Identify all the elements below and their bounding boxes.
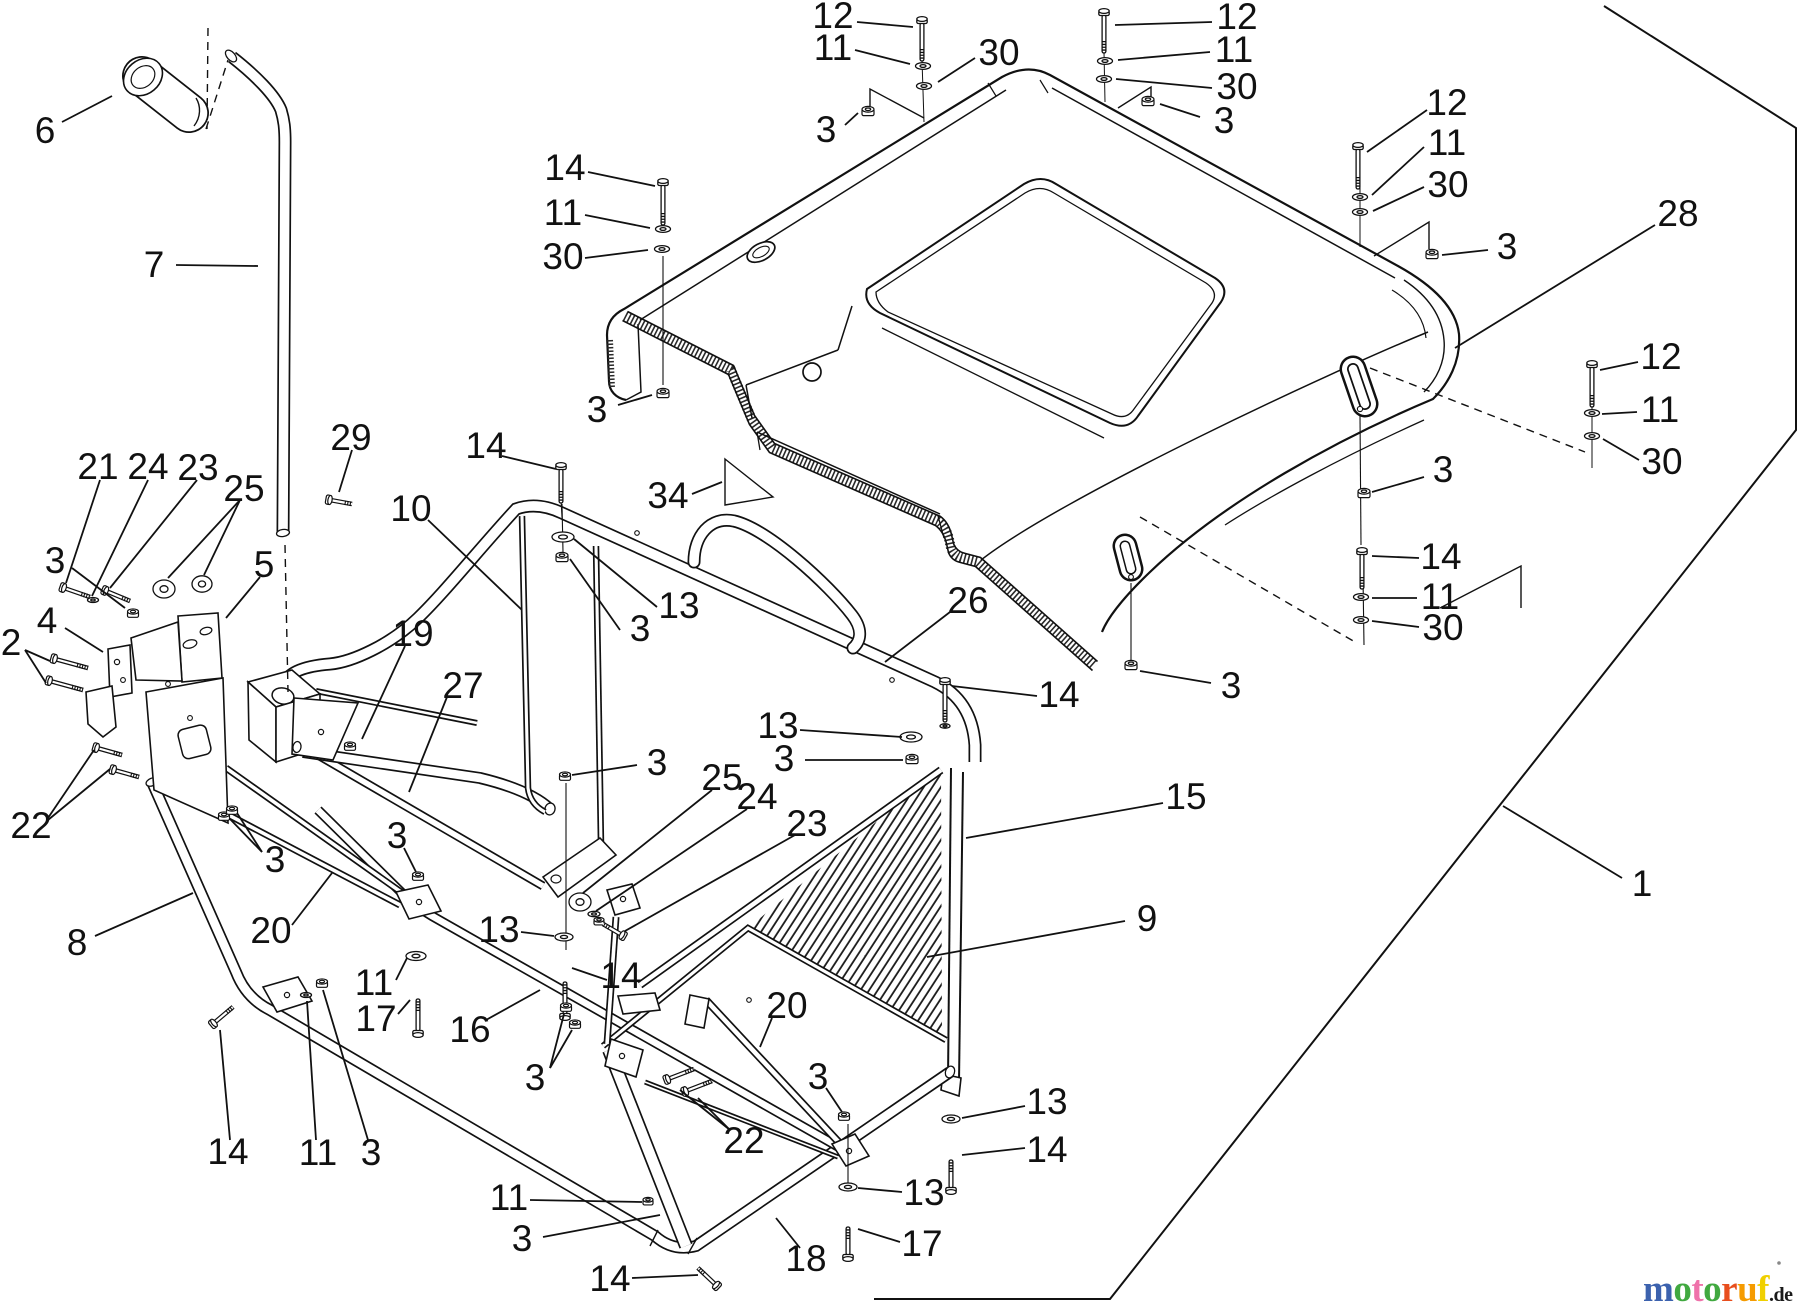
svg-text:14: 14 xyxy=(1038,674,1079,715)
svg-text:13: 13 xyxy=(903,1172,944,1213)
svg-text:14: 14 xyxy=(1026,1129,1067,1170)
svg-text:16: 16 xyxy=(449,1009,490,1050)
svg-text:3: 3 xyxy=(45,540,66,581)
svg-text:10: 10 xyxy=(390,488,431,529)
svg-text:3: 3 xyxy=(1221,665,1242,706)
svg-text:34: 34 xyxy=(647,475,688,516)
svg-text:5: 5 xyxy=(254,544,275,585)
svg-text:14: 14 xyxy=(207,1131,248,1172)
svg-text:13: 13 xyxy=(478,909,519,950)
svg-text:20: 20 xyxy=(250,910,291,951)
svg-text:3: 3 xyxy=(525,1057,546,1098)
svg-text:3: 3 xyxy=(587,389,608,430)
svg-text:8: 8 xyxy=(67,922,88,963)
svg-text:19: 19 xyxy=(392,613,433,654)
svg-text:23: 23 xyxy=(786,803,827,844)
svg-text:25: 25 xyxy=(223,468,264,509)
svg-text:7: 7 xyxy=(144,244,165,285)
svg-text:13: 13 xyxy=(1026,1081,1067,1122)
svg-text:20: 20 xyxy=(766,985,807,1026)
svg-text:3: 3 xyxy=(816,109,837,150)
svg-text:2: 2 xyxy=(1,622,22,663)
svg-text:11: 11 xyxy=(1215,29,1253,70)
svg-text:3: 3 xyxy=(1433,449,1454,490)
svg-text:3: 3 xyxy=(387,815,408,856)
svg-text:11: 11 xyxy=(1641,389,1679,430)
svg-text:21: 21 xyxy=(77,446,118,487)
svg-text:29: 29 xyxy=(330,417,371,458)
svg-text:12: 12 xyxy=(1426,82,1467,123)
svg-text:14: 14 xyxy=(1420,536,1461,577)
svg-text:22: 22 xyxy=(10,805,51,846)
svg-text:3: 3 xyxy=(361,1132,382,1173)
svg-text:11: 11 xyxy=(490,1177,528,1218)
svg-text:27: 27 xyxy=(442,665,483,706)
svg-text:11: 11 xyxy=(544,192,582,233)
svg-text:24: 24 xyxy=(736,776,777,817)
svg-text:30: 30 xyxy=(1422,607,1463,648)
svg-text:12: 12 xyxy=(1640,336,1681,377)
svg-text:30: 30 xyxy=(542,236,583,277)
svg-text:3: 3 xyxy=(630,608,651,649)
svg-text:3: 3 xyxy=(1214,100,1235,141)
svg-text:22: 22 xyxy=(723,1120,764,1161)
svg-text:30: 30 xyxy=(978,32,1019,73)
svg-text:3: 3 xyxy=(647,742,668,783)
svg-text:6: 6 xyxy=(35,110,56,151)
svg-text:11: 11 xyxy=(1428,122,1466,163)
svg-text:3: 3 xyxy=(774,738,795,779)
svg-text:14: 14 xyxy=(465,425,506,466)
svg-text:14: 14 xyxy=(600,955,641,996)
svg-text:3: 3 xyxy=(512,1218,533,1259)
svg-text:1: 1 xyxy=(1632,863,1653,904)
svg-text:17: 17 xyxy=(355,998,396,1039)
svg-text:28: 28 xyxy=(1657,193,1698,234)
svg-text:26: 26 xyxy=(947,580,988,621)
svg-text:14: 14 xyxy=(544,147,585,188)
svg-text:17: 17 xyxy=(901,1223,942,1264)
svg-text:11: 11 xyxy=(814,27,852,68)
svg-text:11: 11 xyxy=(299,1132,337,1173)
svg-text:24: 24 xyxy=(127,446,168,487)
svg-text:3: 3 xyxy=(1497,226,1518,267)
svg-text:9: 9 xyxy=(1137,898,1158,939)
svg-text:18: 18 xyxy=(785,1238,826,1279)
svg-text:30: 30 xyxy=(1427,164,1468,205)
svg-text:3: 3 xyxy=(808,1056,829,1097)
svg-text:14: 14 xyxy=(589,1258,630,1299)
svg-text:13: 13 xyxy=(658,585,699,626)
svg-text:11: 11 xyxy=(355,962,393,1003)
svg-text:4: 4 xyxy=(37,600,58,641)
svg-text:15: 15 xyxy=(1165,776,1206,817)
svg-text:30: 30 xyxy=(1641,441,1682,482)
svg-text:3: 3 xyxy=(265,839,286,880)
svg-text:23: 23 xyxy=(177,447,218,488)
